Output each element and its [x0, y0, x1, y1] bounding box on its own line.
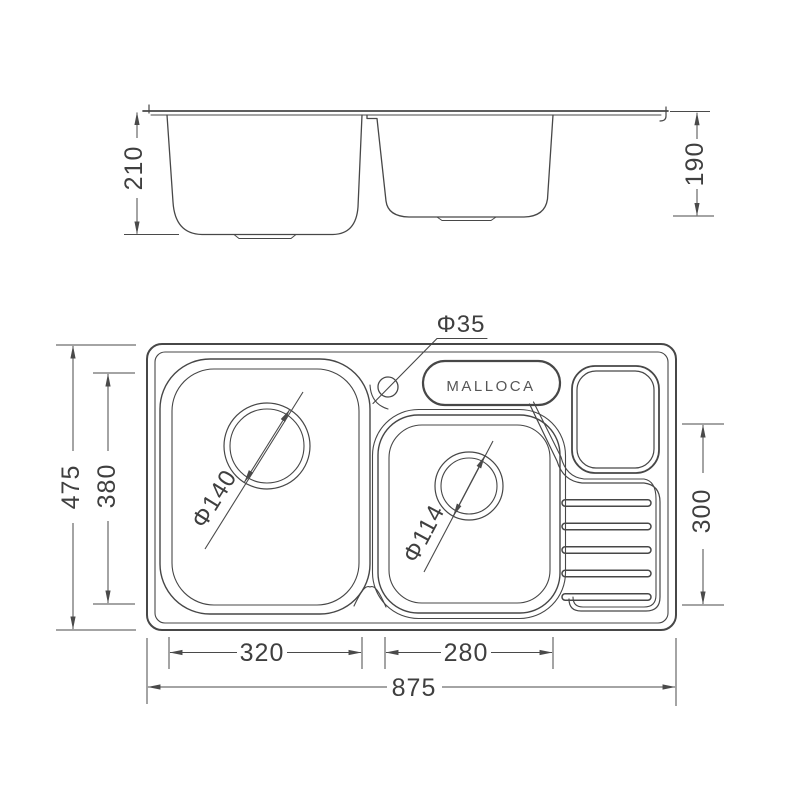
- side-view-dimensions: [124, 112, 714, 235]
- dim-overall-width: 475: [57, 465, 85, 510]
- left-bowl-inner: [172, 369, 359, 605]
- drainer-groove: [562, 547, 651, 554]
- dim-right-bowl-length: 280: [444, 639, 489, 667]
- right-bowl-profile: [367, 115, 553, 217]
- soap-dish-inner: [577, 371, 654, 468]
- dim-phi114-arrow-up: [469, 456, 485, 486]
- drainer-groove: [562, 594, 651, 601]
- drainer-groove: [562, 570, 651, 577]
- dim-phi140-arrow-up: [267, 410, 290, 446]
- dim-phi114-arrow-down: [453, 486, 469, 516]
- drainer-groove: [562, 500, 651, 507]
- brand-label: MALLOCA: [446, 378, 535, 395]
- soap-dish-outer: [572, 366, 659, 473]
- dim-left-bowl-length: 320: [240, 639, 285, 667]
- plan-view-dimensions: [56, 345, 724, 706]
- left-bowl-profile: [167, 115, 362, 235]
- rim-right-hook: [660, 107, 666, 121]
- dim-right-drain-diameter: Φ114: [398, 500, 451, 567]
- drain-dimensions: [205, 392, 493, 572]
- dim-right-bowl-depth: 190: [681, 142, 709, 187]
- drainer-groove: [562, 523, 651, 530]
- dim-left-drain-diameter: Φ140: [186, 465, 242, 533]
- tap-hole: [378, 377, 398, 397]
- dim-overall-length: 875: [392, 674, 437, 702]
- dim-phi140-arrow-down: [245, 446, 268, 482]
- side-view: [143, 105, 668, 239]
- left-bowl-outer: [160, 359, 370, 614]
- dim-right-bowl-width: 300: [688, 489, 716, 534]
- dim-left-bowl-depth: 210: [120, 146, 148, 191]
- dim-tap-hole-diameter: Φ35: [437, 311, 486, 338]
- dim-left-bowl-width: 380: [93, 464, 121, 509]
- sink-technical-drawing: 210 190 MALLOCA: [0, 0, 800, 800]
